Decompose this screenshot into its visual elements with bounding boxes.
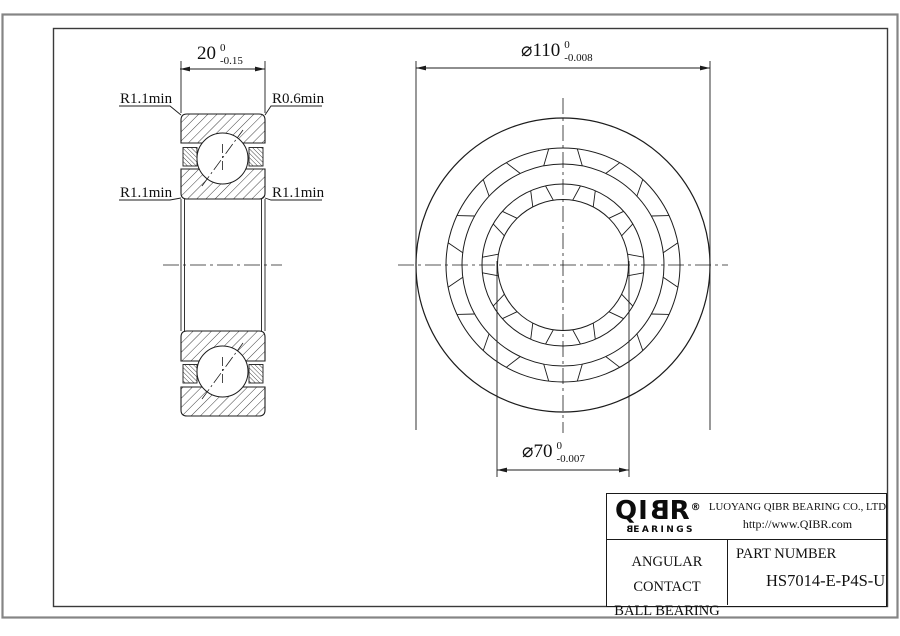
- section-upper-half: [181, 114, 265, 199]
- dimension-value: ⌀110: [521, 41, 560, 60]
- bore-dimension-text: ⌀70 0 -0.007: [522, 442, 585, 465]
- cage-section-right: [249, 148, 263, 167]
- arrowhead-right: [255, 67, 265, 72]
- cage-section-left: [183, 365, 197, 384]
- width-dimension-text: 20 0 -0.15: [197, 44, 243, 67]
- title-block-header-row: QIBR® BEARINGS LUOYANG QIBR BEARING CO.,…: [607, 494, 886, 540]
- company-name: LUOYANG QIBR BEARING CO., LTD: [709, 502, 886, 514]
- part-number-label: PART NUMBER: [736, 546, 886, 563]
- product-line1: ANGULAR CONTACT: [607, 550, 727, 599]
- title-block-detail-row: ANGULAR CONTACT BALL BEARING PART NUMBER…: [607, 540, 886, 605]
- dimension-tolerance: 0 -0.008: [564, 39, 592, 64]
- arrowhead-right: [700, 66, 710, 71]
- cage-section-left: [183, 148, 197, 167]
- product-line2: BALL BEARING: [607, 599, 727, 624]
- part-number-cell: PART NUMBER HS7014-E-P4S-U: [728, 540, 886, 605]
- front-view: [398, 61, 728, 477]
- company-website: http://www.QIBR.com: [709, 518, 886, 531]
- dimension-tolerance: 0 -0.15: [220, 42, 243, 67]
- logo: QIBR® BEARINGS: [607, 498, 709, 535]
- width-dimension-lines: [180, 61, 265, 113]
- fillet-label-mid-right: R1.1min: [272, 185, 325, 201]
- section-lower-half: [181, 331, 265, 416]
- fillet-label-top-right: R0.6min: [272, 91, 325, 107]
- drawing-sheet: R1.1min R0.6min R1.1min R1.1min: [0, 0, 900, 636]
- title-block: QIBR® BEARINGS LUOYANG QIBR BEARING CO.,…: [606, 493, 887, 607]
- arrowhead-right: [619, 468, 629, 473]
- fillet-label-top-left: R1.1min: [120, 91, 173, 107]
- product-description: ANGULAR CONTACT BALL BEARING: [607, 540, 728, 605]
- registered-trademark-mark: ®: [691, 502, 701, 513]
- od-dimension-text: ⌀110 0 -0.008: [521, 41, 593, 64]
- dimension-tolerance: 0 -0.007: [556, 440, 584, 465]
- part-number-value: HS7014-E-P4S-U: [766, 571, 886, 591]
- arrowhead-left: [497, 468, 507, 473]
- logo-text: QIBR: [615, 496, 691, 526]
- logo-wordmark: QIBR®: [615, 498, 709, 524]
- company-info: LUOYANG QIBR BEARING CO., LTD http://www…: [709, 502, 886, 531]
- arrowhead-left: [416, 66, 426, 71]
- dimension-value: 20: [197, 44, 216, 63]
- cage-section-right: [249, 365, 263, 384]
- arrowhead-left: [180, 67, 190, 72]
- fillet-label-mid-left: R1.1min: [120, 185, 173, 201]
- dimension-value: ⌀70: [522, 442, 552, 461]
- logo-subtext: BEARINGS: [624, 525, 709, 535]
- section-view: R1.1min R0.6min R1.1min R1.1min: [119, 61, 325, 416]
- ball-section: [197, 346, 248, 397]
- ball-section: [197, 133, 248, 184]
